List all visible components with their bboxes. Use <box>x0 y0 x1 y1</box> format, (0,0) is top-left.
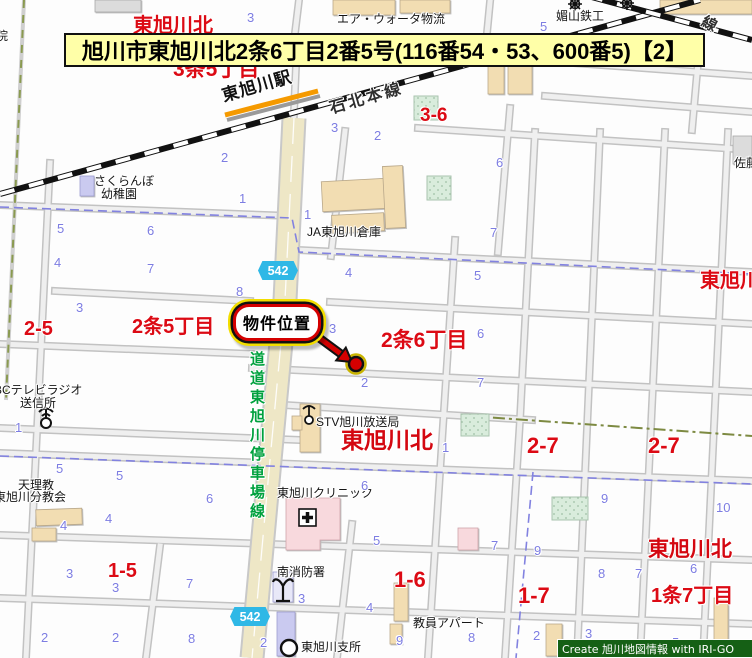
map-graphics <box>0 0 752 658</box>
street-grid <box>0 0 752 658</box>
address-banner: 旭川市東旭川北2条6丁目2番5号(116番54・53、600番5)【2】 <box>64 33 705 67</box>
map-canvas[interactable]: 東旭川北東旭川北3条5丁目3-6東旭川2-52条5丁目2条6丁目東旭川北2-72… <box>0 0 752 658</box>
route-badge-542: 542 <box>230 607 270 626</box>
railway-sekihoku-line <box>0 0 752 194</box>
factory-icon <box>568 0 582 11</box>
property-location-callout: 物件位置 <box>233 304 321 341</box>
town-office-icon <box>281 640 297 656</box>
hospital-cross-icon <box>299 509 316 526</box>
credit-bar: Create 旭川地図情報 with IRI-GO <box>557 639 752 658</box>
route-badge-542: 542 <box>258 261 298 280</box>
tree-path <box>6 0 24 400</box>
